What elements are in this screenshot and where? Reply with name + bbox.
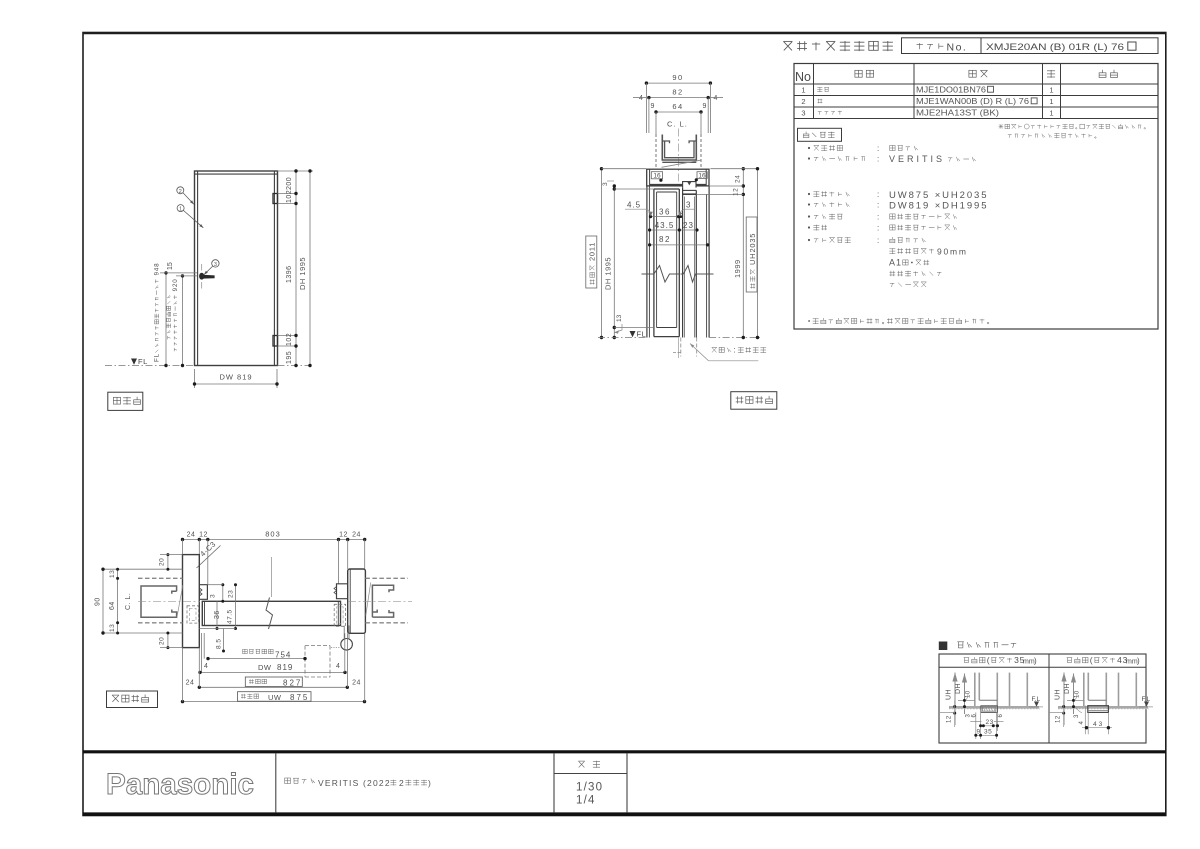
svg-text:948: 948 <box>154 263 161 276</box>
svg-text:DH: DH <box>1064 683 1071 694</box>
svg-text:24: 24 <box>352 532 361 539</box>
svg-text:90mm: 90mm <box>937 247 968 257</box>
svg-text:90: 90 <box>672 73 683 82</box>
svg-text:90: 90 <box>95 597 102 606</box>
svg-text:803: 803 <box>265 530 281 539</box>
svg-text:1: 1 <box>179 207 182 213</box>
svg-text:1/30: 1/30 <box>576 782 603 794</box>
svg-text:24: 24 <box>186 680 195 687</box>
svg-text:2: 2 <box>179 189 182 195</box>
svg-text:MJE1WAN00B (D) R (L) 76: MJE1WAN00B (D) R (L) 76 <box>916 97 1030 106</box>
svg-text:1: 1 <box>801 86 805 95</box>
svg-text:No.: No. <box>947 42 968 54</box>
svg-text::: : <box>877 190 879 199</box>
svg-text:102: 102 <box>286 190 293 203</box>
svg-text:VERITIS (2022: VERITIS (2022 <box>318 778 391 788</box>
svg-text:UH: UH <box>748 253 757 265</box>
svg-text:8.5: 8.5 <box>216 638 223 649</box>
svg-text:VERITIS: VERITIS <box>889 154 945 164</box>
svg-text:10: 10 <box>966 690 972 698</box>
svg-text:64: 64 <box>672 102 683 111</box>
svg-text:20: 20 <box>159 558 166 566</box>
svg-text:23: 23 <box>683 221 694 230</box>
svg-text:12: 12 <box>199 532 208 539</box>
svg-text:DW: DW <box>258 663 272 672</box>
svg-text:1: 1 <box>1049 109 1053 118</box>
svg-text:2035: 2035 <box>748 233 757 253</box>
svg-text:64: 64 <box>109 601 116 610</box>
svg-text:200: 200 <box>286 177 293 190</box>
svg-text:4.5: 4.5 <box>627 201 641 210</box>
svg-text:(: ( <box>1090 655 1093 665</box>
svg-text:4: 4 <box>714 95 718 102</box>
svg-text:FL: FL <box>154 353 161 362</box>
svg-text:754: 754 <box>275 651 291 660</box>
svg-text::: : <box>877 213 879 222</box>
svg-text:16: 16 <box>653 173 661 180</box>
svg-text:20: 20 <box>159 637 166 645</box>
svg-text:13: 13 <box>616 314 623 322</box>
svg-text:UH: UH <box>1055 689 1062 700</box>
svg-text::: : <box>877 236 879 245</box>
svg-text:2011: 2011 <box>588 242 597 261</box>
svg-text:UW: UW <box>268 693 282 702</box>
svg-text:C. L.: C. L. <box>667 120 688 129</box>
svg-text:35: 35 <box>984 729 992 736</box>
svg-text:13: 13 <box>109 570 116 578</box>
svg-text:DH: DH <box>955 683 962 694</box>
svg-text:1: 1 <box>1049 86 1053 95</box>
svg-text:1396: 1396 <box>286 265 293 283</box>
svg-text:10: 10 <box>1075 690 1081 698</box>
svg-text:36: 36 <box>214 610 221 619</box>
svg-text:12: 12 <box>733 188 740 196</box>
svg-text:36: 36 <box>659 207 671 216</box>
svg-text:23: 23 <box>228 590 235 598</box>
svg-text:MJE1DO01BN76: MJE1DO01BN76 <box>916 86 987 95</box>
svg-text:1/4: 1/4 <box>576 795 596 807</box>
svg-text:195: 195 <box>286 351 293 364</box>
svg-text:4: 4 <box>639 95 643 102</box>
svg-text:): ) <box>1034 657 1037 666</box>
svg-text:47.5: 47.5 <box>227 609 234 624</box>
svg-text::: : <box>877 144 879 153</box>
svg-text:13: 13 <box>109 624 116 632</box>
svg-text:FL: FL <box>138 357 148 366</box>
svg-text:(: ( <box>987 655 990 665</box>
svg-text:12: 12 <box>1056 715 1062 723</box>
svg-text:3: 3 <box>801 109 805 118</box>
svg-text:9: 9 <box>651 103 655 110</box>
svg-text:Panasonic: Panasonic <box>106 768 254 801</box>
svg-text:No: No <box>795 70 811 84</box>
svg-text::: : <box>877 224 879 233</box>
svg-text:C. L.: C. L. <box>125 593 132 610</box>
svg-text:24: 24 <box>187 532 196 539</box>
svg-text:82: 82 <box>659 235 671 244</box>
svg-text:3: 3 <box>210 594 217 598</box>
svg-text:12: 12 <box>339 532 348 539</box>
svg-text:DH 1995: DH 1995 <box>298 257 307 290</box>
svg-text:): ) <box>428 778 431 788</box>
svg-text:3: 3 <box>686 201 691 210</box>
svg-text:UW875 ×UH2035: UW875 ×UH2035 <box>889 190 988 201</box>
svg-text:920: 920 <box>172 278 179 291</box>
svg-text:9: 9 <box>703 103 707 110</box>
svg-text:A1: A1 <box>889 258 902 268</box>
svg-text:15: 15 <box>167 262 174 270</box>
svg-text:819: 819 <box>277 663 293 672</box>
svg-text:23: 23 <box>986 719 994 726</box>
svg-text:82: 82 <box>672 88 683 97</box>
svg-text:DW 819: DW 819 <box>219 373 252 382</box>
svg-text:2: 2 <box>801 97 805 106</box>
svg-text:24: 24 <box>352 680 361 687</box>
svg-text:): ) <box>1137 657 1140 666</box>
svg-text:DH 1995: DH 1995 <box>604 257 613 290</box>
svg-text::: : <box>877 201 879 210</box>
svg-text:4: 4 <box>336 663 340 670</box>
svg-text:4: 4 <box>204 663 208 670</box>
svg-text:MJE2HA13ST (BK): MJE2HA13ST (BK) <box>916 109 999 118</box>
svg-text:43.5: 43.5 <box>655 221 675 230</box>
svg-text:2: 2 <box>399 778 404 788</box>
svg-text:9: 9 <box>977 729 981 736</box>
svg-text:875: 875 <box>290 693 309 702</box>
svg-text:827: 827 <box>283 678 302 687</box>
svg-text:1999: 1999 <box>733 259 742 278</box>
svg-text:XMJE20AN (B) 01R (L) 76: XMJE20AN (B) 01R (L) 76 <box>986 42 1124 53</box>
svg-text:102: 102 <box>286 333 293 346</box>
svg-text:12: 12 <box>947 715 953 723</box>
svg-text:1: 1 <box>1049 97 1053 106</box>
svg-text:3: 3 <box>602 182 609 186</box>
svg-text:UH: UH <box>946 689 953 700</box>
svg-text:43: 43 <box>1093 721 1104 728</box>
svg-text:16: 16 <box>698 173 706 180</box>
svg-text:24: 24 <box>735 175 742 183</box>
svg-text::: : <box>733 345 735 354</box>
svg-text:3: 3 <box>214 262 217 268</box>
svg-text::: : <box>877 155 879 164</box>
svg-text:DW819 ×DH1995: DW819 ×DH1995 <box>889 201 988 212</box>
svg-text:FL: FL <box>637 330 647 339</box>
